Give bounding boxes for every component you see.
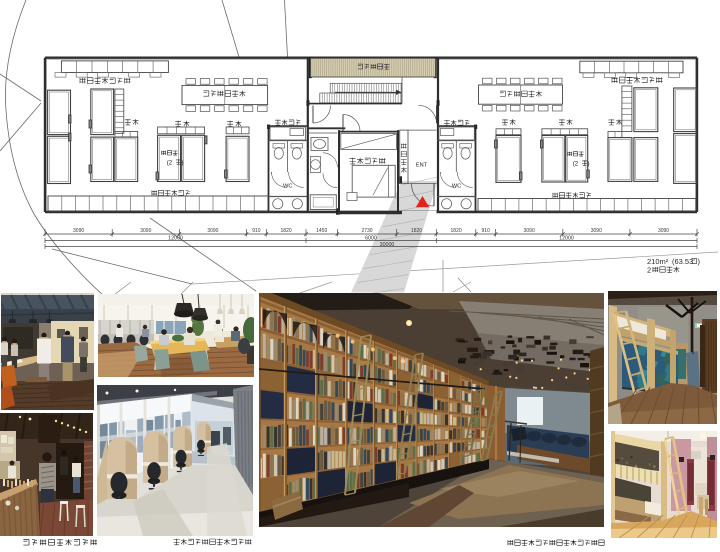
svg-text:30000: 30000 bbox=[380, 242, 395, 248]
svg-text:3090: 3090 bbox=[207, 228, 218, 234]
svg-text:WC: WC bbox=[452, 183, 461, 189]
svg-text:1820: 1820 bbox=[451, 228, 462, 234]
svg-text:): ) bbox=[587, 161, 589, 168]
svg-text:1450: 1450 bbox=[316, 228, 327, 234]
svg-text:): ) bbox=[181, 160, 183, 167]
svg-text:12000: 12000 bbox=[168, 236, 183, 242]
svg-text:3090: 3090 bbox=[140, 228, 151, 234]
svg-text:1820: 1820 bbox=[281, 228, 292, 234]
svg-text:3090: 3090 bbox=[591, 228, 602, 234]
svg-text:(2: (2 bbox=[167, 160, 173, 167]
svg-text:910: 910 bbox=[482, 228, 491, 234]
svg-text:WC: WC bbox=[283, 183, 292, 189]
svg-text:3090: 3090 bbox=[524, 228, 535, 234]
svg-text:910: 910 bbox=[252, 228, 261, 234]
svg-text:210m² (63.53: 210m² (63.53 bbox=[647, 257, 693, 266]
svg-text:6000: 6000 bbox=[365, 236, 377, 242]
svg-text:2730: 2730 bbox=[361, 228, 372, 234]
svg-text:12000: 12000 bbox=[559, 236, 574, 242]
svg-text:(2: (2 bbox=[573, 161, 579, 168]
svg-text:3090: 3090 bbox=[658, 228, 669, 234]
svg-text:2: 2 bbox=[647, 266, 651, 275]
svg-text:1820: 1820 bbox=[411, 228, 422, 234]
svg-text:ENT: ENT bbox=[416, 163, 428, 169]
svg-text:3090: 3090 bbox=[73, 228, 84, 234]
